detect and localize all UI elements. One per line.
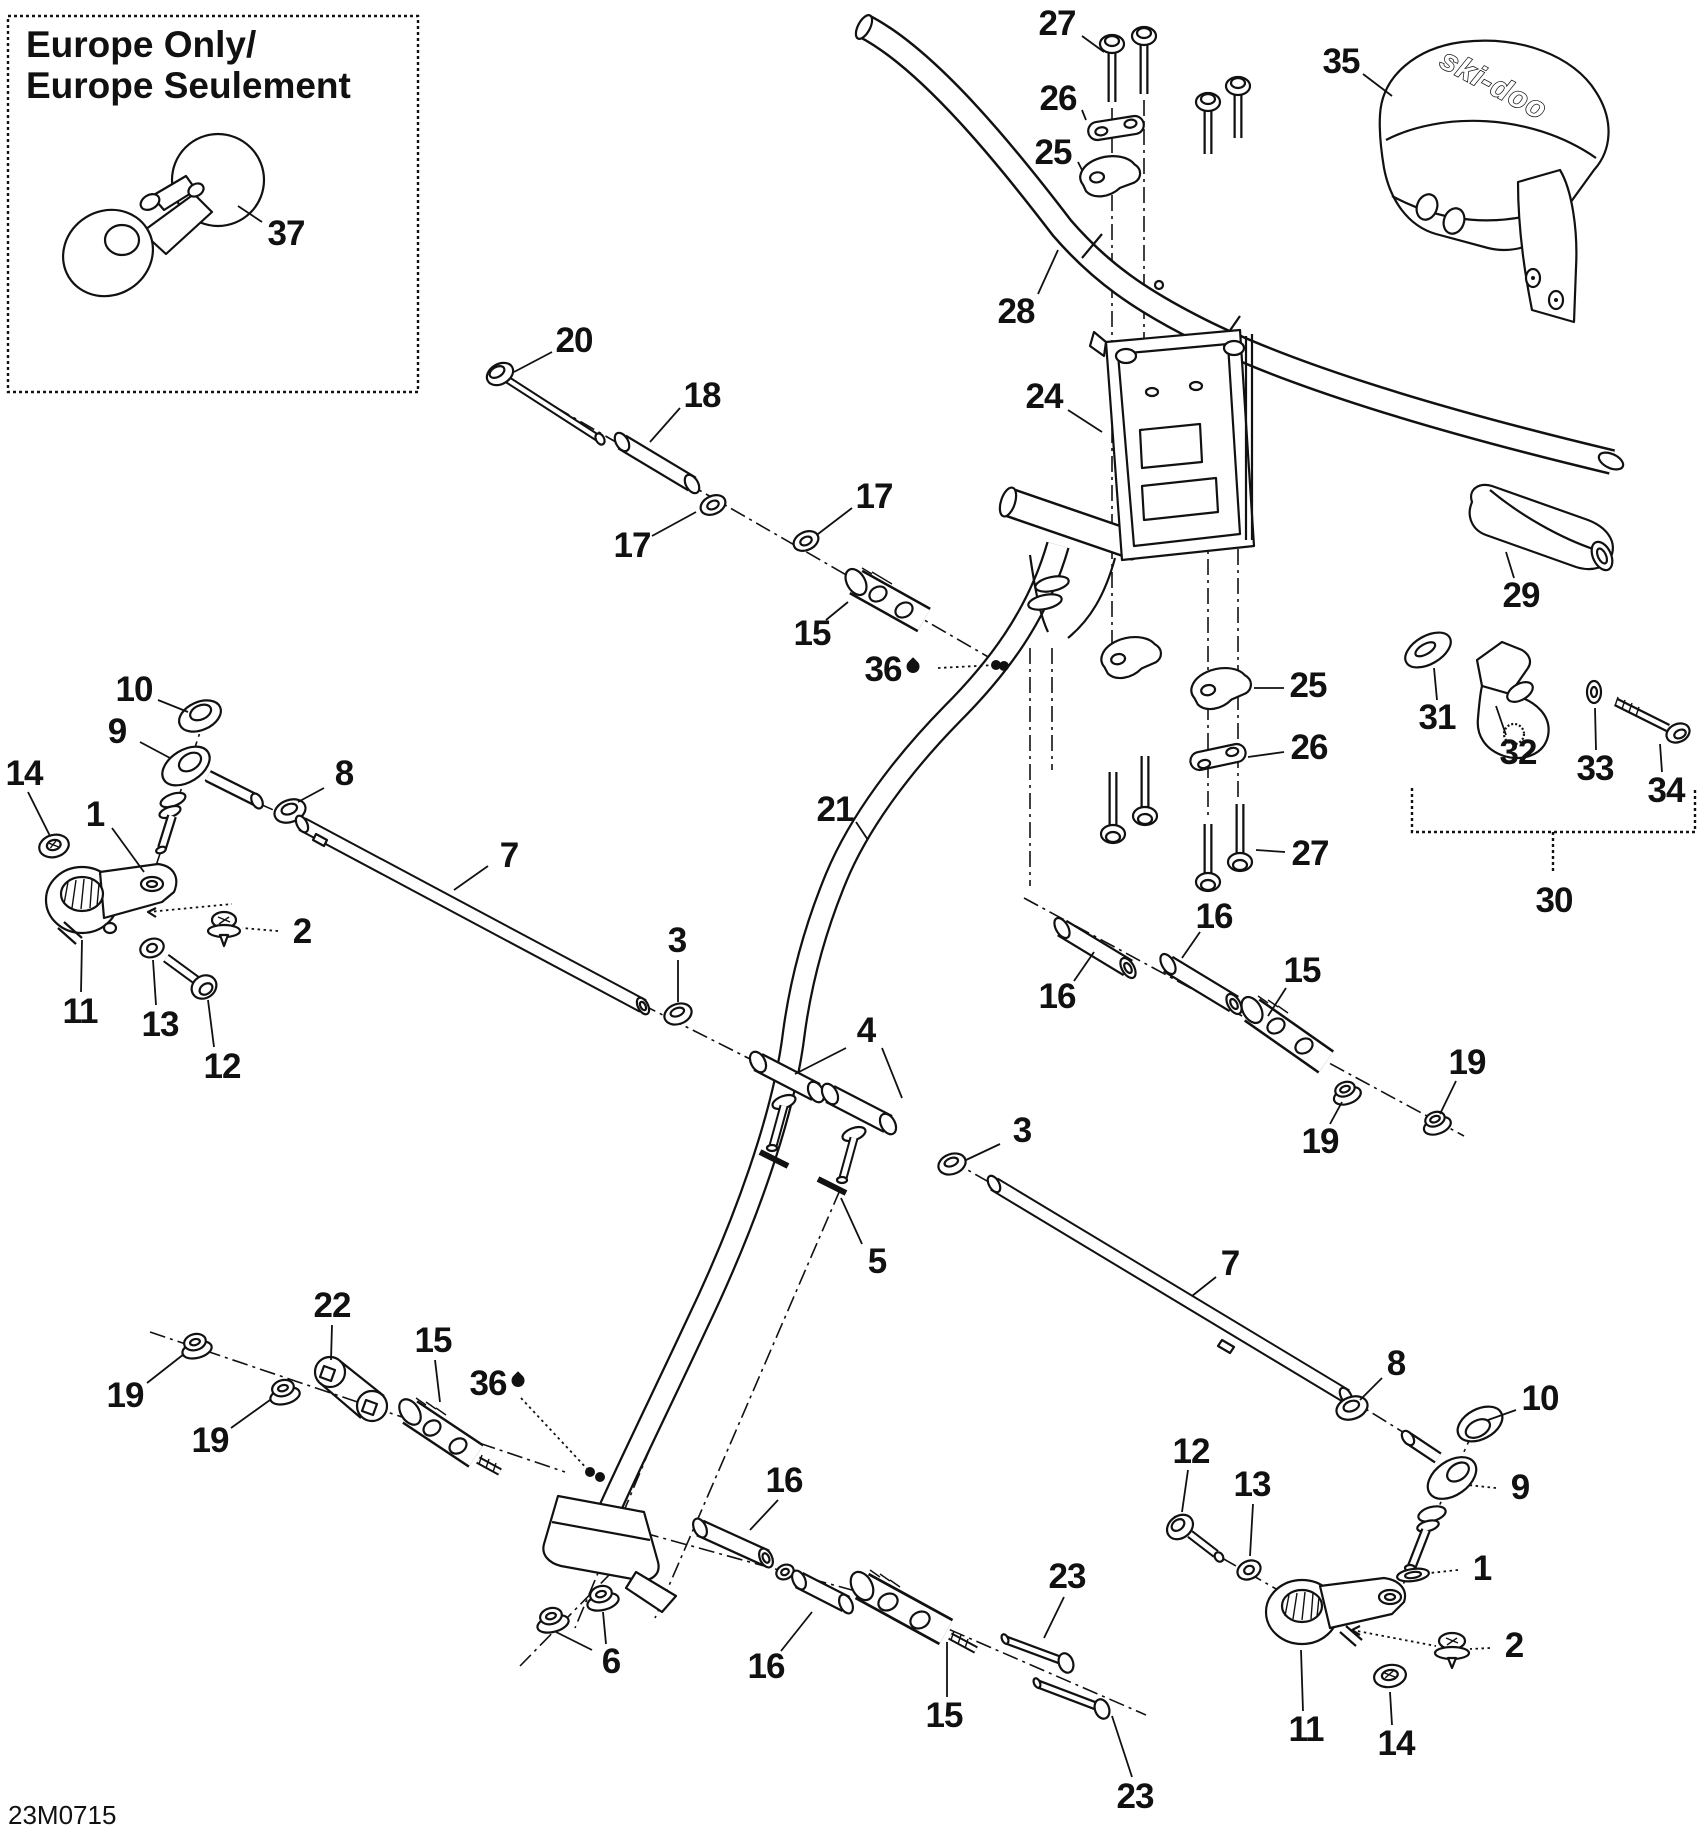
horn-illustration [47,134,264,313]
leader-line [231,1400,270,1428]
leader-line [1360,1378,1382,1400]
leader-line [81,940,82,992]
leader-line [140,742,170,758]
callout-label-9: 9 [1511,1468,1529,1508]
callout-label-13: 13 [1234,1465,1271,1505]
callout-label-28: 28 [998,292,1035,332]
washer-13 [138,935,167,960]
callout-label-36: 36 [470,1364,525,1404]
washer-1 [1396,1567,1429,1583]
washer-17 [697,491,728,518]
leader-line [1044,1597,1064,1638]
callout-label-15: 15 [1284,951,1321,991]
leader-line [521,1398,590,1472]
flanged-nut-6 [533,1604,570,1635]
flanged-nut-19 [1419,1108,1453,1138]
bolt-27 [1133,756,1157,825]
callout-label-19: 19 [1449,1043,1486,1083]
callout-label-19: 19 [1302,1122,1339,1162]
callout-label-6: 6 [602,1642,620,1682]
callout-label-19: 19 [192,1421,229,1461]
inset-title: Europe Only/ Europe Seulement [26,24,351,107]
callout-label-12: 12 [1173,1432,1210,1472]
leader-line [603,1612,606,1644]
callout-label-20: 20 [556,321,593,361]
left-tie-rod [271,795,694,1028]
bolt-27 [1228,804,1252,871]
leader-line [966,1144,1000,1160]
assembly-axis-lines [148,100,1474,1715]
leader-line [841,1198,862,1244]
leader-line [1192,1277,1216,1296]
leader-line [1434,668,1437,700]
bolt-12 [166,958,221,1003]
leader-line [298,788,324,802]
callout-label-27: 27 [1292,834,1329,874]
hex-nut-3 [661,1000,694,1028]
inset-title-line1: Europe Only/ [26,24,351,65]
callout-label-26: 26 [1040,79,1077,119]
callout-label-1: 1 [86,795,104,835]
leader-line [1301,1650,1303,1711]
tie-rod-end-9 [1399,1429,1484,1571]
flanged-nut-19 [178,1331,213,1362]
callout-label-2: 2 [293,912,311,952]
flanged-nut-14 [37,831,72,860]
callout-label-13: 13 [142,1005,179,1045]
exploded-view-drawing: ski-doo [0,0,1700,1837]
callout-label-33: 33 [1577,749,1614,789]
adjuster-coupler-15 [841,565,924,620]
leader-line [158,700,188,712]
sheet-code: 23M0715 [8,1800,116,1831]
callout-label-36: 36 [865,650,920,690]
callout-label-3: 3 [668,921,686,961]
adjuster-coupler-15 [395,1395,500,1472]
callout-label-24: 24 [1026,377,1063,417]
lubrication-point-dot [595,1472,605,1482]
callout-label-8: 8 [1387,1344,1405,1384]
leader-line [435,1360,440,1402]
callout-label-8: 8 [335,754,353,794]
callout-label-11: 11 [63,992,98,1032]
leader-line [750,1500,778,1530]
leader-line [1038,250,1058,294]
leader-line [1506,552,1514,578]
bolt-12 [1162,1510,1225,1564]
callout-label-29: 29 [1503,576,1540,616]
tie-rod-end-9 [155,739,265,855]
column-clamp-hardware-bottom [1098,632,1255,891]
ball-joint-4 [819,1081,900,1183]
flanged-nut-19 [1329,1078,1363,1108]
callout-label-30: 30 [1536,881,1573,921]
flanged-nut-14 [1372,1662,1407,1689]
left-steering-arm-cluster [37,694,266,1003]
callout-label-11: 11 [1289,1710,1324,1750]
bolt-34 [1615,697,1693,746]
washer-33 [1587,681,1601,703]
callout-label-21: 21 [817,790,854,830]
bolt-20 [483,358,607,446]
callout-label-12: 12 [204,1047,241,1087]
hex-nut-3 [935,1150,968,1178]
leader-line [1468,1485,1496,1488]
leader-line [1248,752,1284,757]
spacer-sleeve-18 [612,430,702,495]
callout-label-23: 23 [1049,1557,1086,1597]
oil-drop-icon [904,657,922,675]
leader-line [1390,1692,1392,1725]
callout-label-37: 37 [268,214,305,254]
right-steering-arm-cluster [1162,1392,1508,1689]
oil-drop-icon [509,1371,527,1389]
leader-end-dot [991,660,1001,670]
pin-23 [1032,1677,1112,1721]
flange-screw-2 [1435,1633,1469,1668]
parts-diagram-page: ski-doo [0,0,1700,1837]
leader-line [818,508,852,534]
bolt-27 [1100,35,1124,102]
leader-line [1082,110,1086,120]
leader-line [1430,1570,1458,1573]
handlebar-grip [1470,485,1617,573]
bolt-27 [1101,772,1125,843]
callout-label-17: 17 [856,477,893,517]
callout-label-16: 16 [1039,977,1076,1017]
callout-label-15: 15 [926,1696,963,1736]
connector-link-22 [315,1357,387,1421]
leader-line [1074,952,1094,981]
ball-joint-cap-10 [1452,1399,1508,1448]
adjuster-coupler-15 [1237,993,1326,1062]
spacer-sleeve-16 [690,1516,775,1569]
leader-line [1250,1504,1253,1556]
center-ball-joints [747,1049,969,1193]
leader-line [1595,708,1596,750]
leader-line [1078,162,1082,170]
flanged-nut-6 [583,1582,620,1613]
leader-line [112,828,144,872]
flange-screw-2 [208,912,240,946]
handlebar-clamp-25 [1098,632,1165,682]
callout-label-31: 31 [1419,698,1456,738]
leader-end-dot [585,1467,595,1477]
leader-line [652,512,696,536]
leader-line [1182,1470,1188,1512]
leader-line [147,1354,184,1383]
callout-label-16: 16 [766,1461,803,1501]
callout-label-7: 7 [1221,1244,1239,1284]
steering-arm-11 [46,864,176,944]
leader-line [454,866,488,890]
leader-line [331,1325,332,1360]
leader-line [1660,744,1662,772]
callout-label-22: 22 [314,1286,351,1326]
callout-label-34: 34 [1648,771,1685,811]
spacer-sleeve-16 [789,1568,855,1615]
callout-label-9: 9 [108,712,126,752]
clamp-plate-26 [1087,115,1145,142]
leader-line [28,792,50,836]
leader-line [1440,1081,1456,1114]
callout-label-7: 7 [500,836,518,876]
steering-arm-11 [1266,1578,1405,1646]
leader-line [1112,1716,1132,1777]
handlebar-cover: ski-doo [1380,41,1609,322]
callout-label-4: 4 [857,1011,875,1051]
bolt-27 [1196,93,1220,154]
leader-line [1068,410,1102,432]
callout-label-17: 17 [614,526,651,566]
callout-label-25: 25 [1290,666,1327,706]
adjuster-coupler-15 [846,1568,976,1650]
cover-strap [1518,170,1576,322]
callout-label-16: 16 [1196,897,1233,937]
callout-label-23: 23 [1117,1777,1154,1817]
handlebar-clamp-hardware-top [1078,27,1250,199]
callout-label-26: 26 [1291,728,1328,768]
callout-label-14: 14 [6,754,43,794]
inset-title-line2: Europe Seulement [26,65,351,106]
leader-line [514,352,552,372]
callout-label-10: 10 [116,670,153,710]
leader-line [882,1048,902,1098]
callout-label-27: 27 [1039,4,1076,44]
leader-line [208,1000,214,1047]
leader-line [781,1612,812,1651]
leader-line [556,1632,592,1650]
callout-label-10: 10 [1522,1379,1559,1419]
callout-label-1: 1 [1473,1549,1491,1589]
bolt-27 [1196,824,1220,891]
leader-line [650,408,680,442]
callout-label-25: 25 [1035,133,1072,173]
callout-label-5: 5 [868,1242,886,1282]
callout-label-32: 32 [1500,733,1537,773]
callout-leader-lines [28,36,1662,1777]
leader-line [242,928,278,931]
callout-label-3: 3 [1013,1111,1031,1151]
throttle-lever-assembly [1399,625,1695,872]
callout-label-14: 14 [1378,1724,1415,1764]
leader-line [153,960,156,1005]
callout-label-15: 15 [794,614,831,654]
callout-label-16: 16 [748,1647,785,1687]
callout-label-35: 35 [1323,42,1360,82]
spacer-sleeve-16 [1157,951,1244,1016]
bolt-27 [1132,27,1156,94]
leader-line [1470,1648,1490,1649]
leader-line [1330,1102,1342,1124]
handlebar-clamp-25 [1188,663,1255,713]
callout-label-2: 2 [1505,1626,1523,1666]
ball-joint-cap-10 [174,694,226,737]
washer-17 [790,527,821,554]
callout-label-15: 15 [415,1321,452,1361]
callout-label-19: 19 [107,1376,144,1416]
bolt-27 [1226,77,1250,138]
leader-line [1256,850,1285,852]
callout-label-18: 18 [684,376,721,416]
handlebar-clamp-25 [1078,152,1143,199]
lever-tip-31 [1399,625,1456,674]
spacer-sleeve-16 [1051,915,1138,980]
